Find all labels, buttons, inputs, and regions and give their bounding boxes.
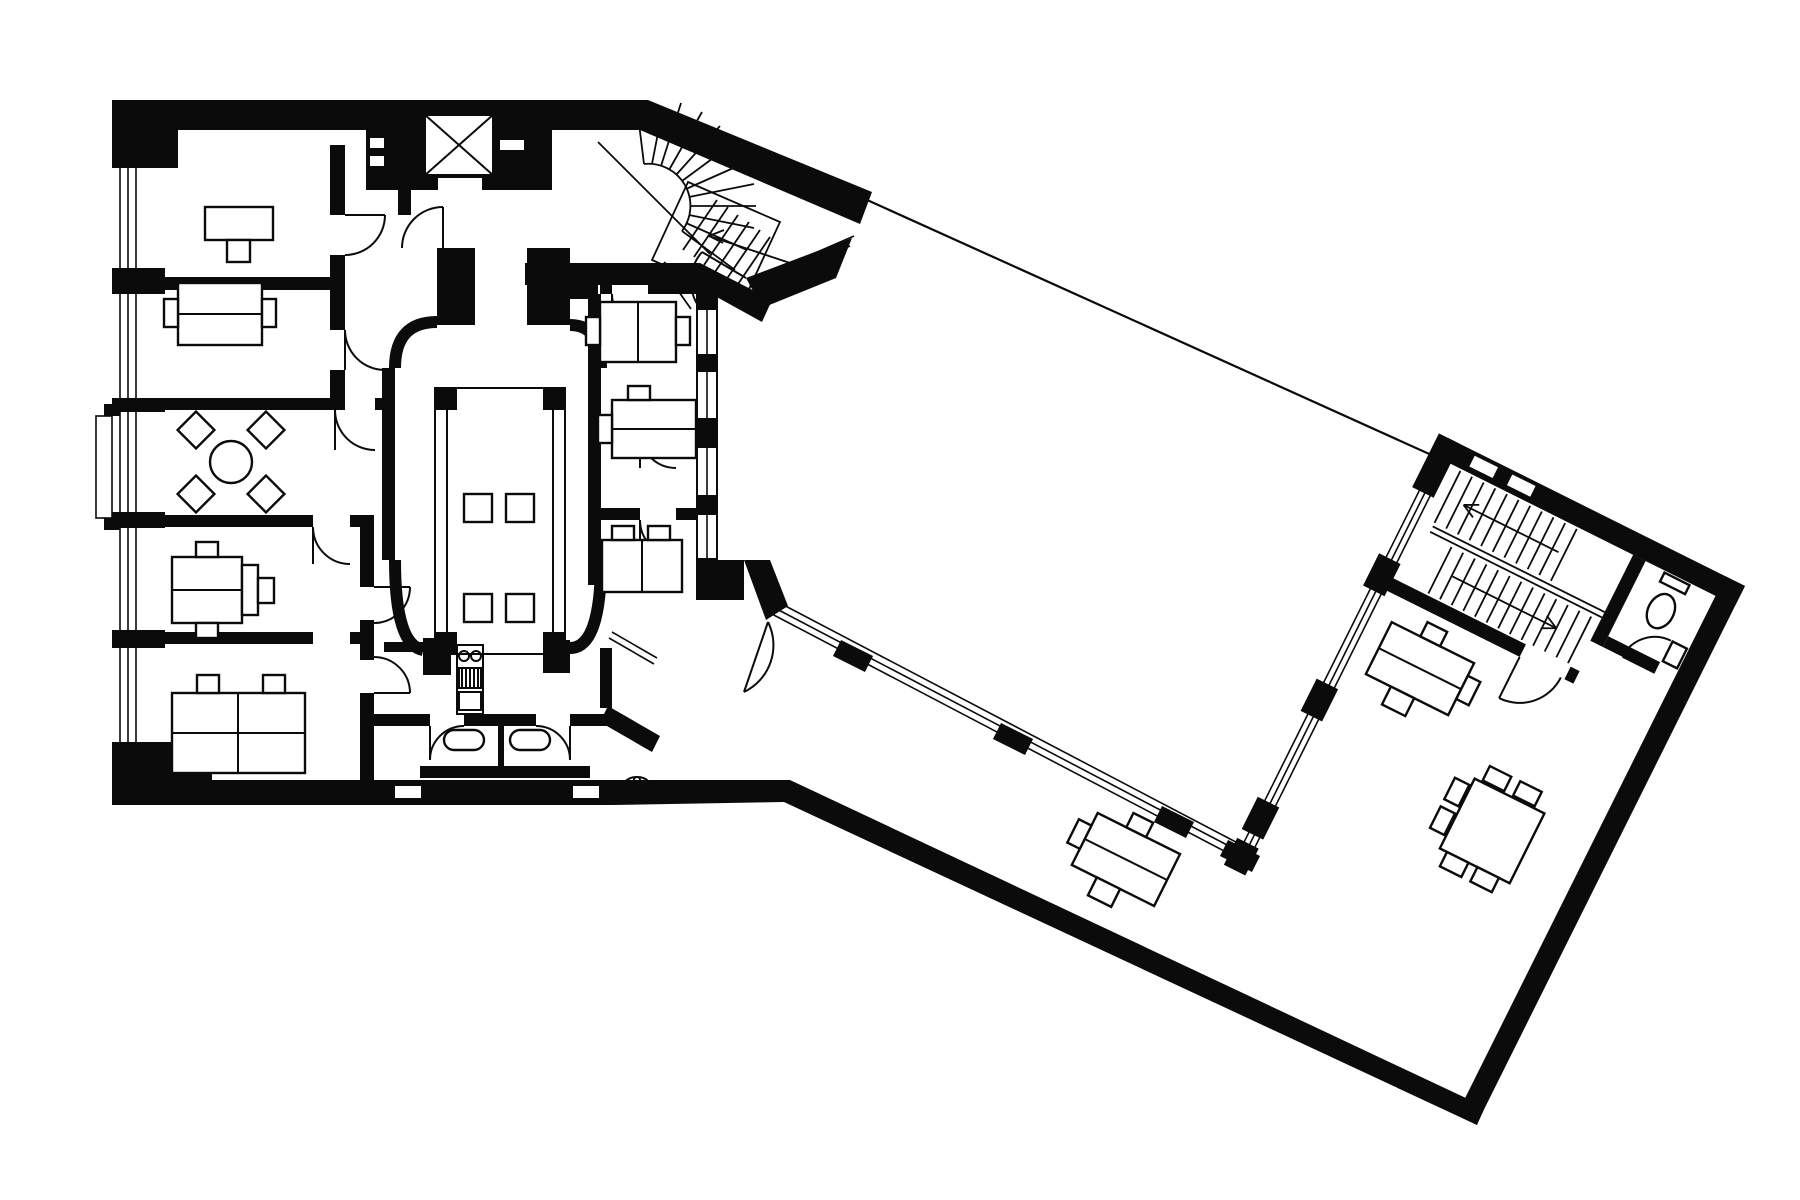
stool bbox=[506, 494, 534, 522]
desk-office-east-1 bbox=[586, 302, 690, 362]
floor-plan-sheet bbox=[0, 0, 1800, 1200]
stool bbox=[464, 594, 492, 622]
elevator-core bbox=[366, 100, 552, 190]
desk-room-2 bbox=[164, 283, 276, 345]
floor-plan-drawing bbox=[0, 0, 1800, 1200]
wc-bowl bbox=[444, 730, 484, 750]
stool bbox=[506, 594, 534, 622]
wc-bowl bbox=[510, 730, 550, 750]
stool bbox=[464, 494, 492, 522]
